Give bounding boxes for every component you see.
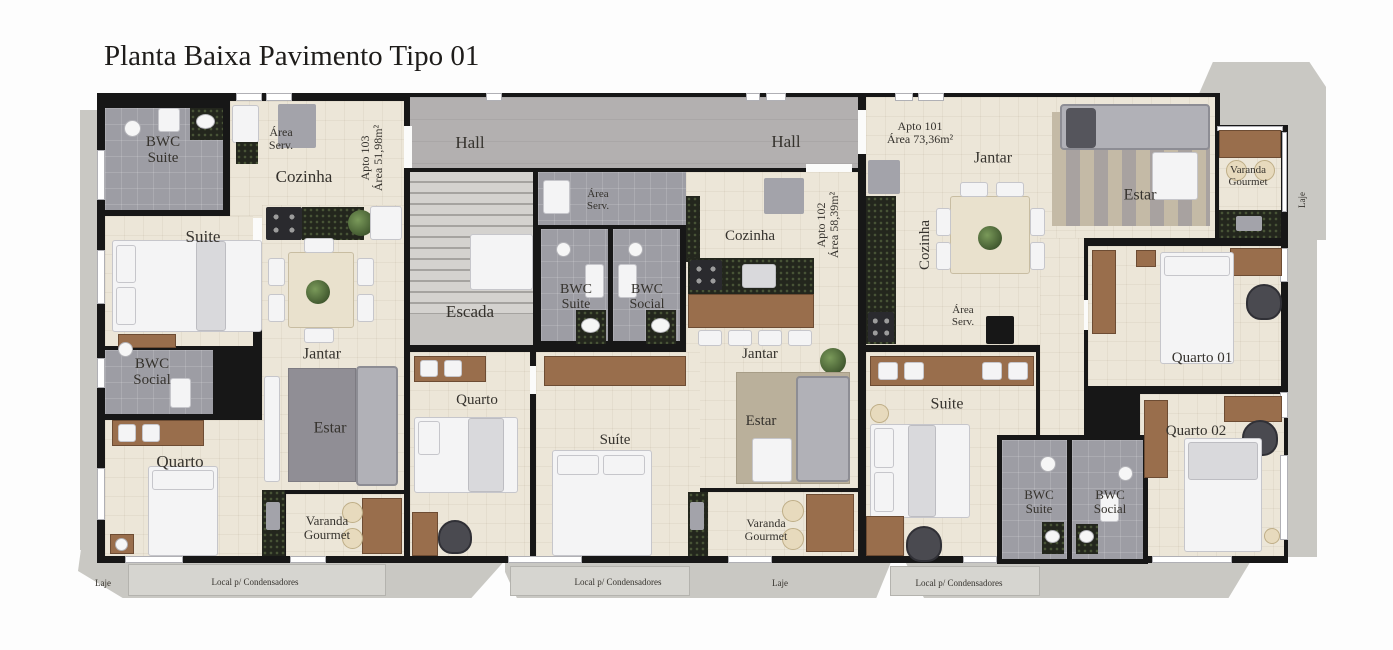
blanket (468, 418, 504, 492)
window (895, 93, 913, 101)
plant (306, 280, 330, 304)
basket (982, 362, 1002, 380)
room-floor-bwc-social-103 (105, 350, 213, 414)
lamp (115, 538, 128, 551)
gourmet-table (806, 494, 854, 552)
chair (788, 330, 812, 346)
stool (1254, 160, 1275, 181)
desk (1230, 248, 1282, 276)
window (266, 93, 292, 101)
office-chair (906, 526, 942, 562)
ottoman (1152, 152, 1198, 200)
chair (304, 328, 334, 343)
window (97, 468, 105, 520)
basket (118, 424, 136, 442)
gourmet-bar (1219, 130, 1281, 158)
basket (878, 362, 898, 380)
door (530, 366, 536, 394)
window (766, 93, 786, 101)
chair (960, 182, 988, 197)
basket (142, 424, 160, 442)
shower-head (118, 342, 133, 357)
plant (820, 348, 846, 374)
pillow (152, 470, 214, 490)
blanket (196, 241, 226, 331)
floor-plan: Planta Baixa Pavimento Tipo 01 BWC Suite… (0, 0, 1393, 650)
chair (758, 330, 782, 346)
wardrobe (1144, 400, 1168, 478)
side-table (870, 404, 889, 423)
chair (268, 294, 285, 322)
stair-landing (470, 234, 533, 290)
chair (936, 242, 951, 270)
sink (266, 502, 280, 530)
sink (581, 318, 600, 333)
room-floor-corredor-101 (1040, 238, 1084, 438)
window (1152, 556, 1232, 563)
wardrobe (544, 356, 686, 386)
shower-head (124, 120, 141, 137)
chair (996, 182, 1024, 197)
fridge (232, 105, 259, 143)
basket (420, 360, 438, 377)
stool (342, 502, 363, 523)
office-chair (438, 520, 472, 554)
shower-head (1118, 466, 1133, 481)
window (97, 250, 105, 304)
toilet (170, 378, 191, 408)
window (728, 556, 772, 563)
concrete-slab (1284, 225, 1317, 557)
rug (288, 368, 356, 482)
shower-head (556, 242, 571, 257)
chair (268, 258, 285, 286)
washer (986, 316, 1014, 344)
door (858, 110, 866, 154)
sofa (796, 376, 850, 482)
basket (444, 360, 462, 377)
basket (904, 362, 924, 380)
door (806, 164, 852, 172)
shower-tray (158, 108, 180, 132)
pillow (116, 287, 136, 325)
room-floor-bwc-suite-101 (997, 435, 1076, 564)
gourmet-table (362, 498, 402, 554)
basket (1008, 362, 1028, 380)
ottoman (752, 438, 792, 482)
blanket (908, 425, 936, 517)
chair (357, 258, 374, 286)
desk (412, 512, 438, 556)
counter (686, 196, 700, 262)
desk (1224, 396, 1282, 422)
kitchen-sink (742, 264, 776, 288)
toilet (585, 264, 604, 298)
lamp (1264, 528, 1280, 544)
cushion (1066, 108, 1096, 148)
chair (1030, 208, 1045, 236)
stove (690, 260, 722, 290)
concrete-slab (890, 566, 1040, 596)
plant (978, 226, 1002, 250)
stove (266, 207, 302, 240)
washer (543, 180, 570, 214)
page-title: Planta Baixa Pavimento Tipo 01 (104, 40, 479, 73)
chair (936, 208, 951, 236)
concrete-slab (128, 564, 386, 596)
cabinet (764, 178, 804, 214)
sideboard (868, 160, 900, 194)
window (918, 93, 944, 101)
window (1282, 132, 1287, 212)
stool (342, 528, 363, 549)
window (97, 358, 105, 388)
chair (1030, 242, 1045, 270)
cabinet (278, 104, 316, 148)
nightstand (1136, 250, 1156, 267)
toilet (1100, 494, 1119, 522)
kitchen-sink (236, 142, 258, 164)
blanket (1188, 442, 1258, 480)
shower-head (1040, 456, 1056, 472)
chair (357, 294, 374, 322)
stool (782, 528, 804, 550)
office-chair (1246, 284, 1282, 320)
sink (1079, 530, 1094, 543)
pillow (603, 455, 645, 475)
door (1084, 300, 1088, 330)
counter-end (370, 206, 402, 240)
sink (651, 318, 670, 333)
pillow (116, 245, 136, 283)
window (236, 93, 262, 101)
pillow (874, 428, 894, 468)
sink (196, 114, 215, 129)
room-floor-hall (410, 97, 858, 168)
sink (1236, 216, 1262, 231)
sink (690, 502, 704, 530)
pillow (874, 472, 894, 512)
wardrobe (1092, 250, 1116, 334)
window (486, 93, 502, 101)
pillow (1164, 256, 1230, 276)
window (290, 556, 326, 563)
stool (782, 500, 804, 522)
window (97, 150, 105, 200)
window (125, 556, 183, 563)
sofa (356, 366, 398, 486)
door (404, 126, 412, 168)
chair (728, 330, 752, 346)
window (1280, 455, 1288, 540)
stove (868, 312, 894, 342)
concrete-slab (510, 566, 690, 596)
chair (698, 330, 722, 346)
window (508, 556, 582, 563)
shower-head (628, 242, 643, 257)
sink (1045, 530, 1060, 543)
pillow (557, 455, 599, 475)
desk (866, 516, 904, 556)
window (746, 93, 760, 101)
window (963, 556, 997, 563)
pillow (418, 421, 440, 455)
tv-panel (264, 376, 280, 482)
kitchen-island (688, 294, 814, 328)
chair (304, 238, 334, 253)
toilet (618, 264, 637, 298)
stool (1226, 160, 1247, 181)
